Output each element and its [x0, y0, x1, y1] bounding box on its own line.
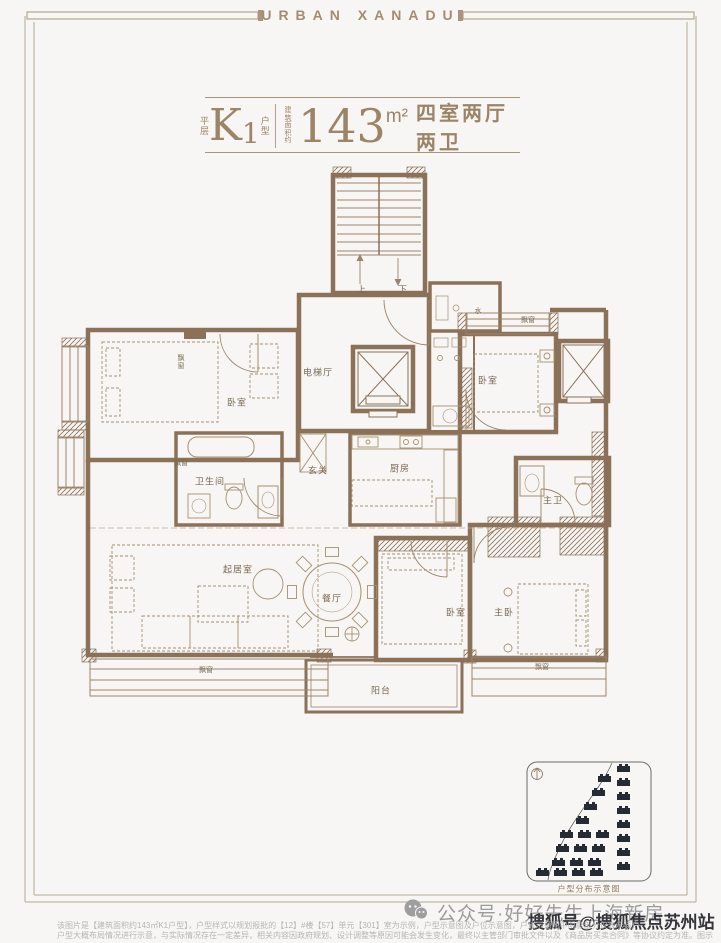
- plan-walls: [86, 175, 609, 660]
- room-label-dining-room: 餐厅: [322, 592, 342, 605]
- stair-up-label: 上: [357, 283, 367, 296]
- wechat-icon: [403, 898, 429, 922]
- elevator-shaft: [358, 352, 408, 417]
- room-label-bathroom: 卫生间: [195, 475, 225, 488]
- utility-shaft: [563, 345, 604, 403]
- minimap-caption: 户型分布示意图: [558, 884, 621, 895]
- area-prefix: 建筑面积约: [285, 107, 297, 145]
- room-label-master-bedroom: 主卧: [494, 606, 514, 619]
- brand-title: URBAN XANADU: [0, 7, 721, 23]
- room-label-bay-top-right: 飘窗: [521, 315, 535, 325]
- room-label-bay-left-lower: 飘窗: [174, 458, 188, 468]
- unit-code: K: [209, 104, 242, 148]
- floor-label: 平层: [200, 116, 209, 136]
- unit-code-sub: 1: [242, 120, 260, 148]
- room-label-bedroom-2: 卧室: [478, 374, 498, 387]
- unit-title: 平层 K 1 户型 建筑面积约 143 m² 四室两厅两卫: [200, 100, 522, 152]
- room-label-water: 水: [475, 306, 482, 316]
- area-value: 143: [298, 103, 386, 149]
- area-unit: m²: [386, 106, 408, 128]
- disclaimer-line-1: 该图片是【建筑面积约143㎡K1户型】，户型样式以规划报批的【12】#楼【57】…: [57, 921, 713, 931]
- room-label-bay-bottom-left: 飘窗: [199, 665, 213, 675]
- stair-down-label: 下: [398, 283, 408, 296]
- compass-icon: [532, 768, 543, 780]
- minimap-buildings: [536, 764, 630, 876]
- room-label-balcony: 阳台: [371, 684, 391, 697]
- room-label-master-bathroom: 主卫: [543, 494, 563, 507]
- floorplan-page: { "header": { "brand": "URBAN XANADU" },…: [0, 0, 721, 943]
- room-label-bay-left-upper: 飘窗: [175, 354, 185, 370]
- rooms-summary: 四室两厅两卫: [416, 97, 522, 155]
- site-minimap: [527, 762, 651, 881]
- room-label-bedroom-1: 卧室: [227, 396, 247, 409]
- disclaimer-line-2: 户型大概布局情况进行示意，与实际情况存在一定差异，相关内容因政府规划、设计调整等…: [57, 931, 713, 941]
- room-label-living-room: 起居室: [223, 563, 253, 576]
- room-label-elevator-hall: 电梯厅: [303, 366, 333, 379]
- room-label-foyer: 玄关: [308, 464, 328, 477]
- room-label-kitchen: 厨房: [390, 462, 410, 475]
- furniture: [90, 296, 604, 661]
- staircase: [337, 177, 421, 285]
- room-label-bay-bottom-right: 飘窗: [535, 662, 549, 672]
- room-label-bedroom-3: 卧室: [446, 606, 466, 619]
- unit-suffix: 户型: [261, 116, 270, 136]
- title-divider: [275, 104, 276, 148]
- title-rule-bottom: [205, 152, 520, 153]
